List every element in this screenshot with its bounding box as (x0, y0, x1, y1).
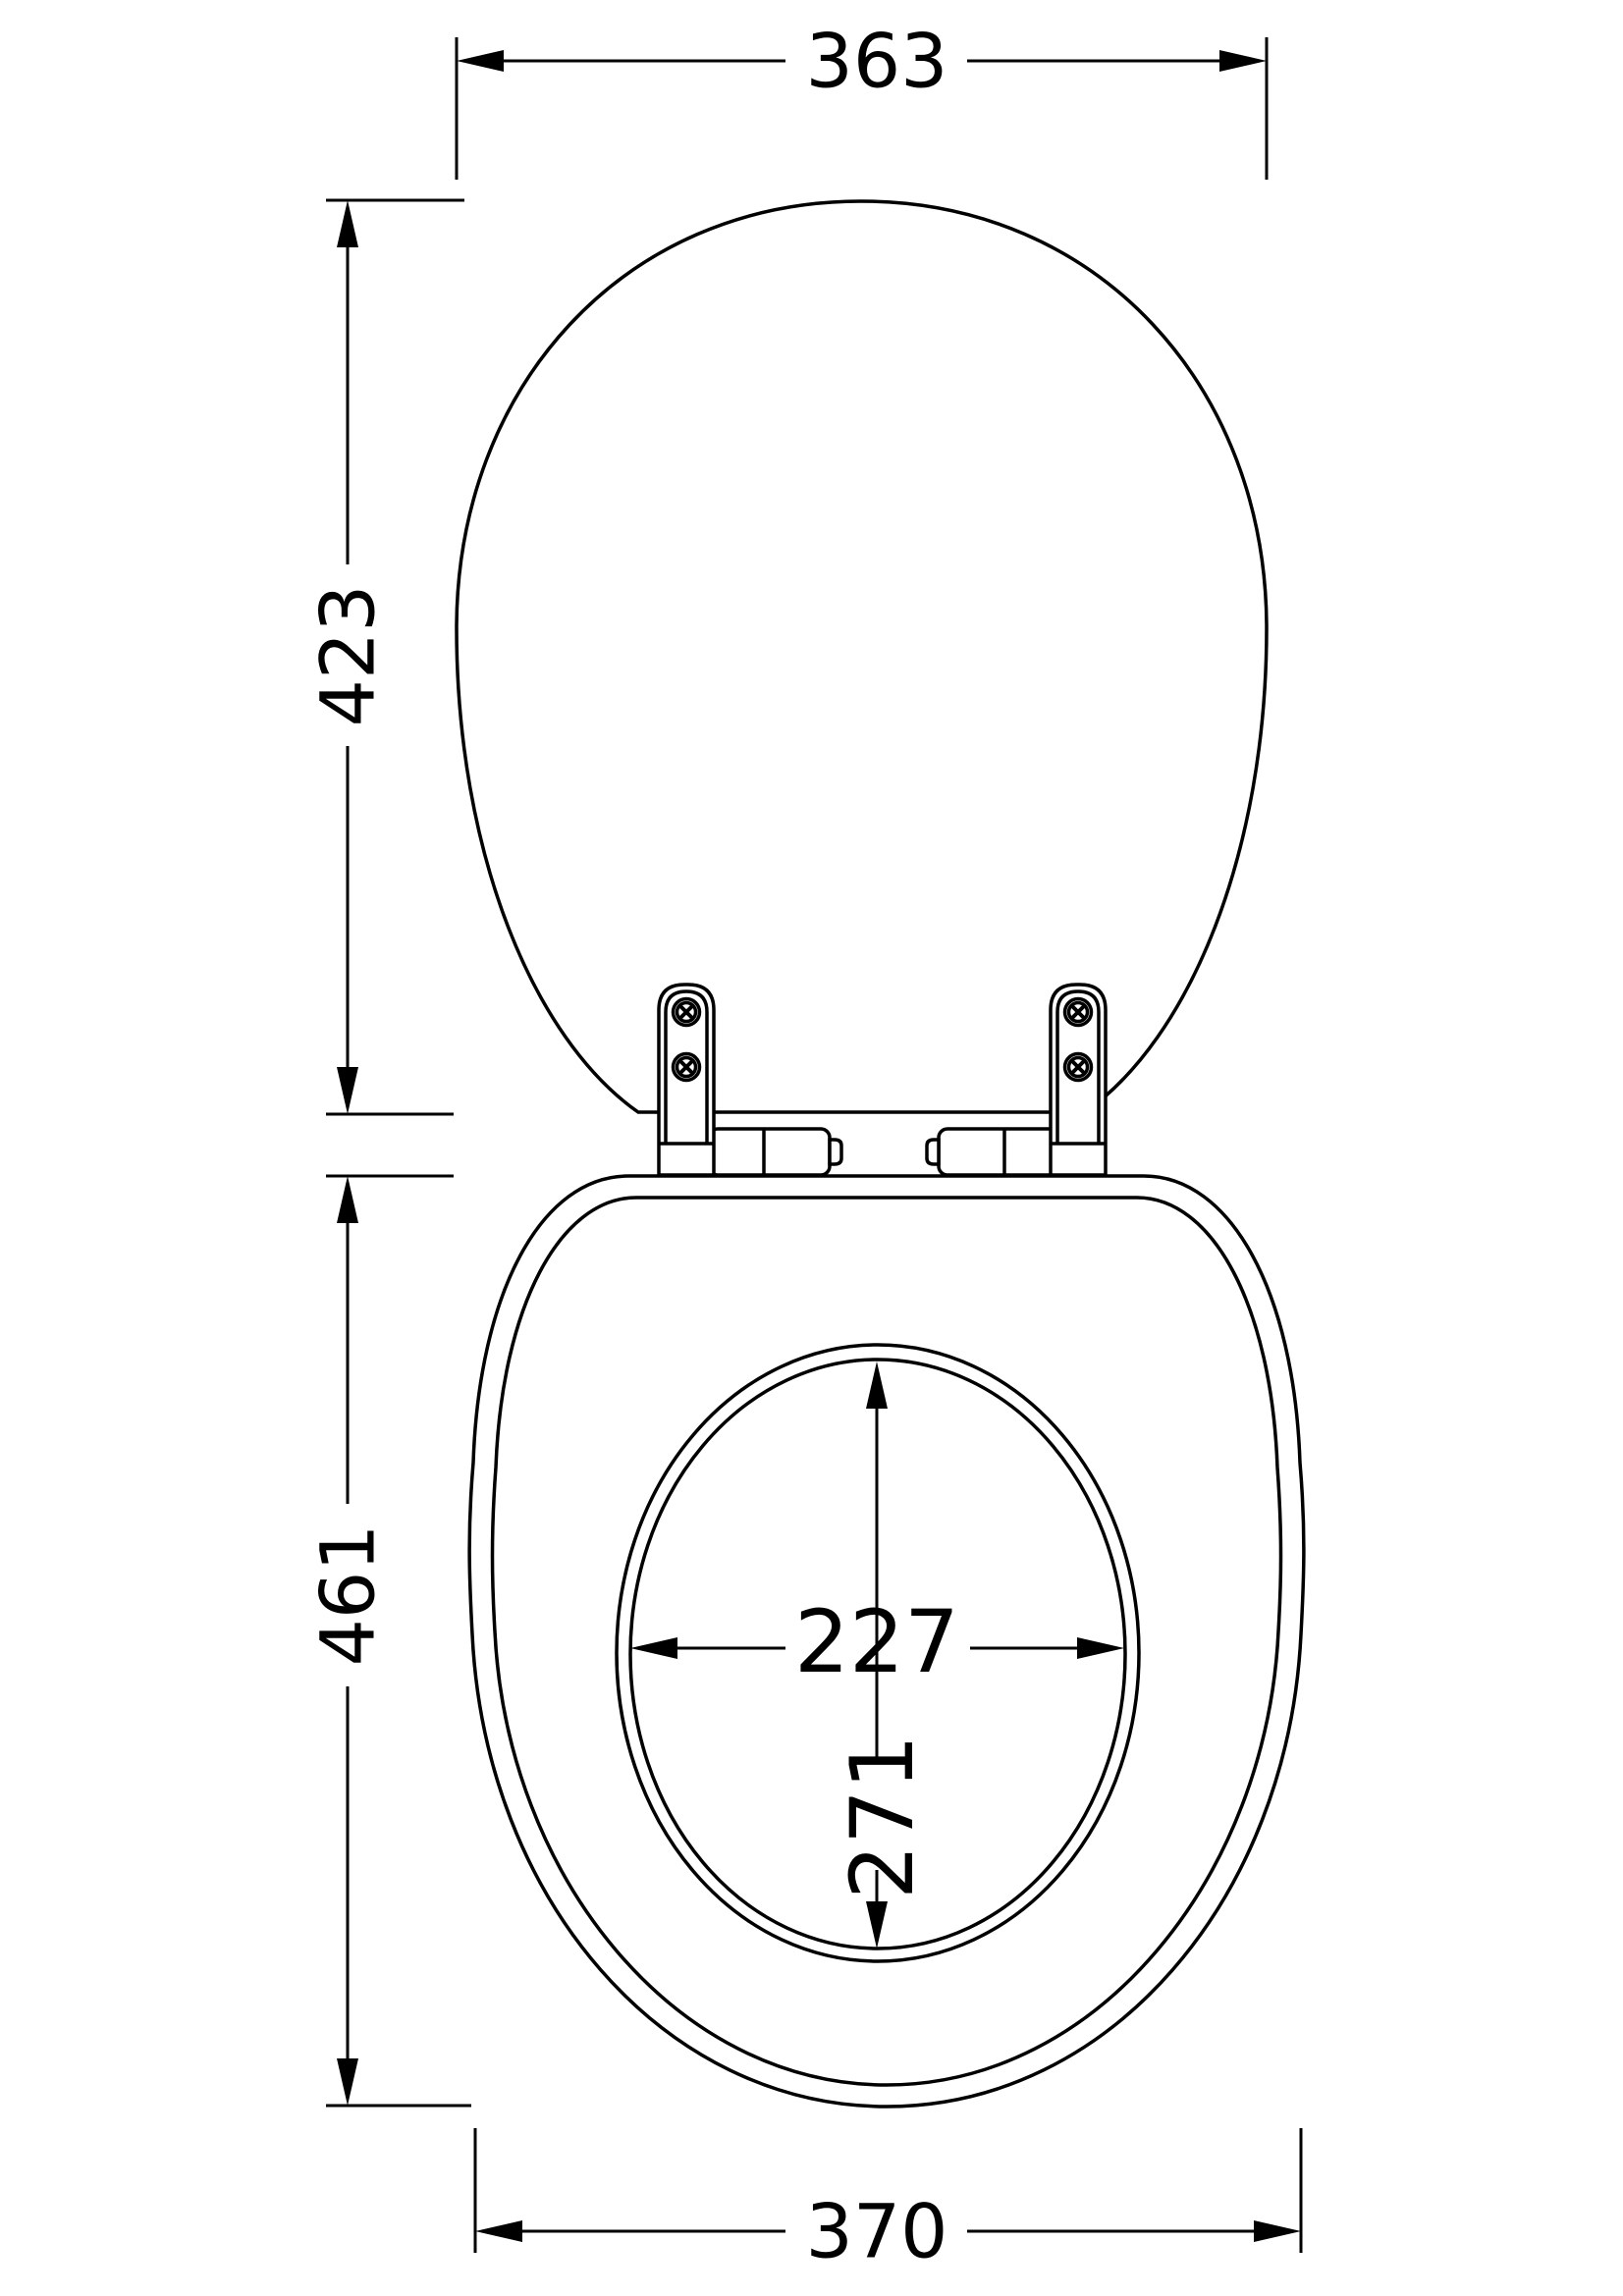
barrel-pin (927, 1140, 939, 1164)
drawing-svg: 363 423 461 370 227 271 (0, 0, 1623, 2296)
technical-drawing-toilet-seat: 363 423 461 370 227 271 (0, 0, 1623, 2296)
arrowhead-left-icon (457, 50, 504, 72)
arrowhead-up-icon (337, 1176, 358, 1223)
hinge-barrel-left (709, 1129, 841, 1175)
arrowhead-up-icon (337, 200, 358, 247)
lid-outline (457, 201, 1267, 1112)
label-lid-width: 363 (805, 18, 947, 105)
screw-icon (674, 999, 700, 1026)
arrowhead-left-icon (475, 2220, 522, 2242)
screw-icon (1065, 999, 1092, 1026)
hinge-barrel-right (927, 1129, 1059, 1175)
arrowhead-right-icon (1254, 2220, 1301, 2242)
arrowhead-right-icon (1219, 50, 1267, 72)
hinge-arm-right (1051, 985, 1106, 1175)
arrowhead-down-icon (337, 2058, 358, 2106)
barrel-pin (830, 1140, 841, 1164)
screw-icon (1065, 1054, 1092, 1081)
label-seat-width: 370 (805, 2188, 947, 2275)
label-seat-length: 461 (304, 1523, 392, 1666)
label-opening-width: 227 (794, 1591, 959, 1692)
arrowhead-down-icon (337, 1067, 358, 1114)
screw-icon (674, 1054, 700, 1081)
label-lid-height: 423 (304, 584, 392, 726)
label-opening-length: 271 (832, 1735, 933, 1899)
hinge-arm-left (659, 985, 714, 1175)
